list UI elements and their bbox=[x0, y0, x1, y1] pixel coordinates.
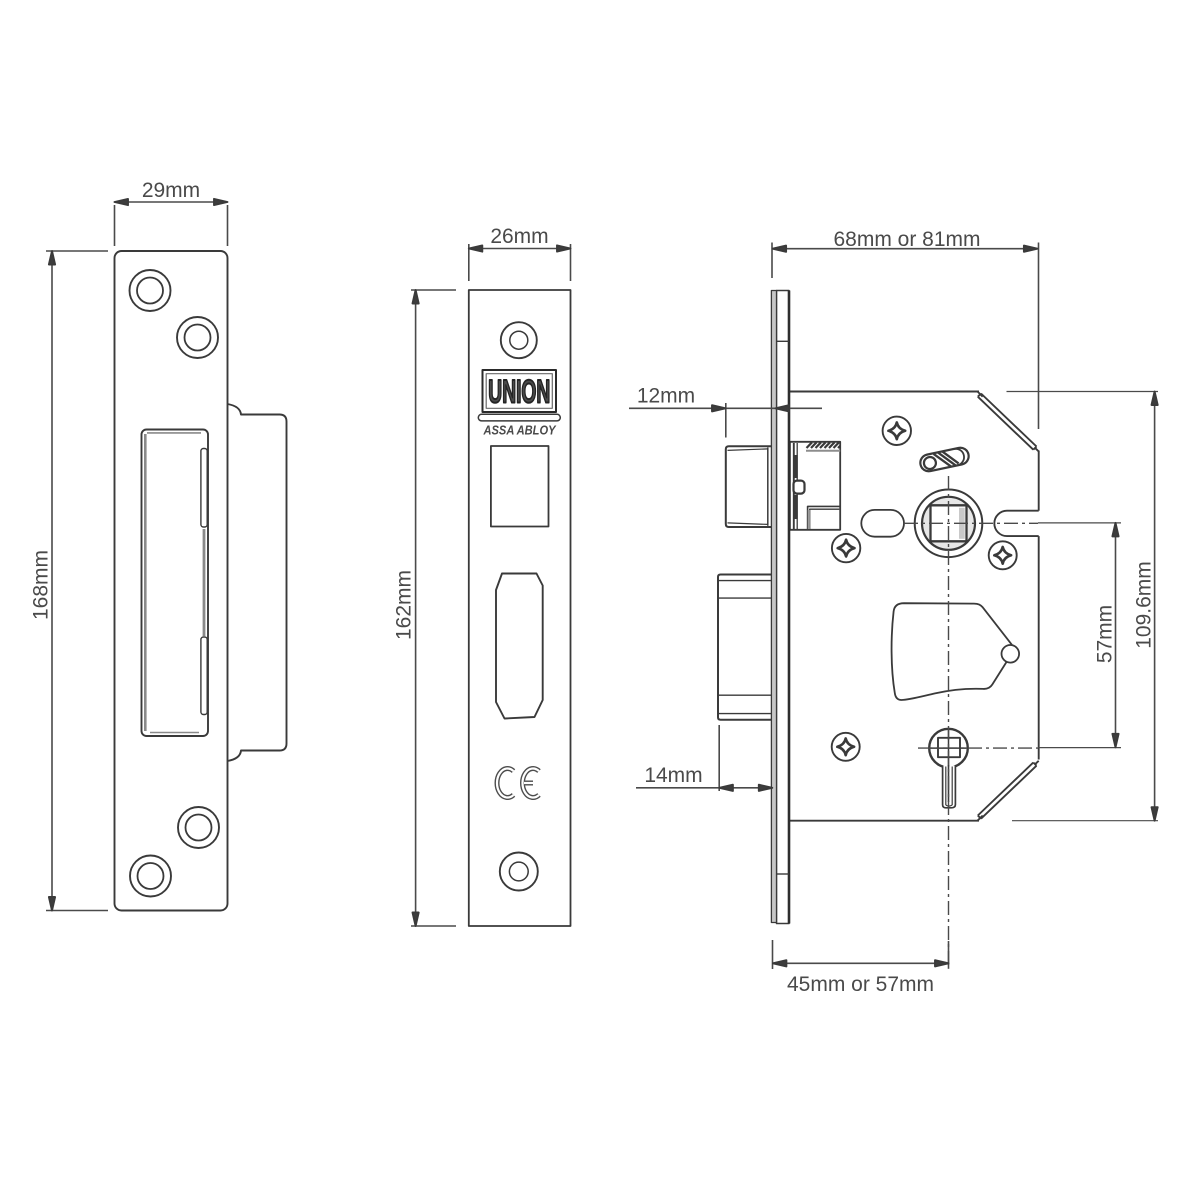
svg-text:168mm: 168mm bbox=[30, 550, 53, 620]
svg-text:57mm: 57mm bbox=[1094, 605, 1117, 663]
svg-text:45mm or 57mm: 45mm or 57mm bbox=[787, 973, 934, 996]
svg-text:26mm: 26mm bbox=[490, 225, 548, 248]
svg-text:29mm: 29mm bbox=[142, 179, 200, 202]
svg-text:ASSA ABLOY: ASSA ABLOY bbox=[483, 424, 557, 438]
svg-text:162mm: 162mm bbox=[393, 570, 416, 640]
svg-text:UNION: UNION bbox=[488, 374, 550, 410]
svg-text:68mm or 81mm: 68mm or 81mm bbox=[833, 228, 980, 251]
svg-text:14mm: 14mm bbox=[644, 764, 702, 787]
svg-text:109.6mm: 109.6mm bbox=[1133, 561, 1156, 649]
svg-text:12mm: 12mm bbox=[637, 385, 695, 408]
